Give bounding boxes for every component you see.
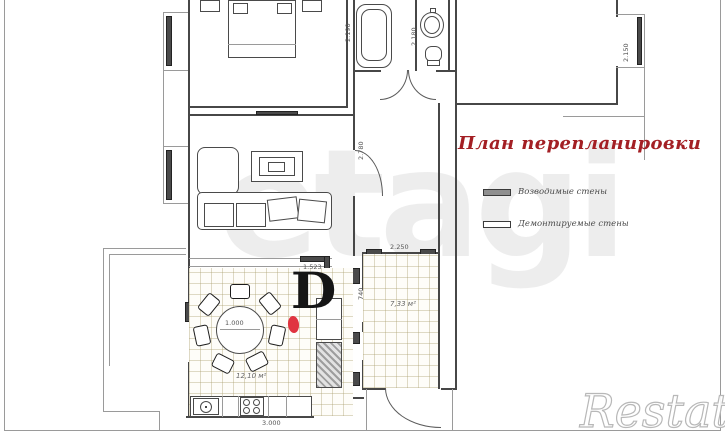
wall — [720, 0, 721, 431]
pillow — [277, 3, 292, 14]
wall — [163, 146, 189, 147]
dim-label: 2.180 — [410, 27, 418, 46]
hall-tiles — [363, 254, 438, 388]
balcony — [109, 254, 186, 255]
wall — [616, 67, 645, 68]
balcony — [159, 411, 160, 431]
door-arc — [408, 70, 436, 100]
legend-erected-label: Возводимые стены — [518, 187, 607, 197]
kitchen-counter — [238, 396, 239, 417]
floor-plan: etagi — [0, 0, 725, 444]
wall — [163, 70, 189, 71]
dim-label: 2.250 — [390, 243, 409, 251]
wall — [616, 66, 618, 105]
entrance-door-arc — [385, 388, 441, 428]
area-label-hall: 7,33 м² — [390, 300, 416, 308]
wall — [353, 70, 381, 72]
new-wall — [352, 372, 360, 386]
sofa — [197, 147, 239, 195]
wall — [4, 0, 5, 431]
new-wall — [352, 332, 360, 344]
wall — [163, 12, 189, 13]
kitchen-sink — [205, 406, 207, 408]
chair — [230, 284, 250, 299]
faucet-icon — [430, 8, 436, 13]
dim-label: 740 — [357, 288, 365, 300]
dim-label: 2.780 — [357, 141, 365, 160]
kitchen-counter — [286, 396, 287, 417]
stove-burner — [243, 399, 250, 406]
balcony — [103, 248, 186, 249]
wall — [188, 106, 348, 108]
dining-table — [216, 306, 264, 354]
dim-label: 2.150 — [622, 43, 630, 62]
legend-demolished-swatch — [483, 221, 511, 228]
dining-table — [220, 329, 260, 330]
dim-label: 3.000 — [262, 419, 281, 427]
window-icon — [637, 17, 642, 65]
wall — [346, 0, 348, 107]
wall — [353, 196, 355, 256]
stove-burner — [243, 407, 250, 414]
legend-demolished-label: Демонтируемые стены — [518, 219, 629, 229]
wall — [441, 388, 456, 390]
wall — [644, 14, 645, 68]
sofa-cushion — [204, 203, 234, 227]
legend-erected-swatch — [483, 189, 511, 196]
watermark-restate: Restate — [580, 384, 725, 438]
bathtub — [361, 9, 387, 61]
balcony — [109, 254, 110, 366]
page-title: План перепланировки — [458, 133, 701, 154]
wall — [455, 0, 457, 104]
stove-burner — [253, 407, 260, 414]
toilet — [427, 60, 440, 66]
window-icon — [166, 16, 172, 66]
wall — [438, 103, 440, 389]
wall — [366, 389, 367, 430]
sofa-cushion — [267, 196, 299, 221]
area-label-kitchen: 12,10 м² — [236, 372, 266, 380]
wall — [353, 0, 355, 150]
dim-label: 1.000 — [225, 319, 244, 327]
wall — [452, 389, 453, 430]
window-icon — [166, 150, 172, 200]
wall — [448, 0, 450, 71]
letter-d-mark: D — [291, 266, 337, 316]
sofa-cushion — [297, 199, 327, 224]
coffee-table — [268, 162, 285, 172]
dim-label: 2.190 — [344, 23, 352, 42]
balcony — [103, 411, 160, 412]
new-wall — [352, 268, 360, 284]
wall — [616, 14, 645, 15]
fridge — [316, 342, 342, 388]
pillow — [233, 3, 248, 14]
dim-label: 1.523 — [303, 263, 322, 271]
wall — [436, 70, 455, 72]
balcony — [103, 248, 104, 412]
kitchen-counter — [222, 396, 223, 417]
wall — [563, 116, 645, 117]
door-arc — [380, 70, 408, 100]
wc-sink — [424, 16, 440, 34]
wall — [163, 12, 164, 204]
wall — [455, 103, 618, 105]
nightstand — [302, 0, 322, 12]
wall — [163, 203, 189, 204]
kitchen-counter — [268, 396, 269, 417]
sofa-cushion — [236, 203, 266, 227]
stove-burner — [253, 399, 260, 406]
wall — [455, 103, 457, 390]
nightstand — [200, 0, 220, 12]
bed — [228, 44, 296, 45]
new-wall — [256, 111, 298, 115]
